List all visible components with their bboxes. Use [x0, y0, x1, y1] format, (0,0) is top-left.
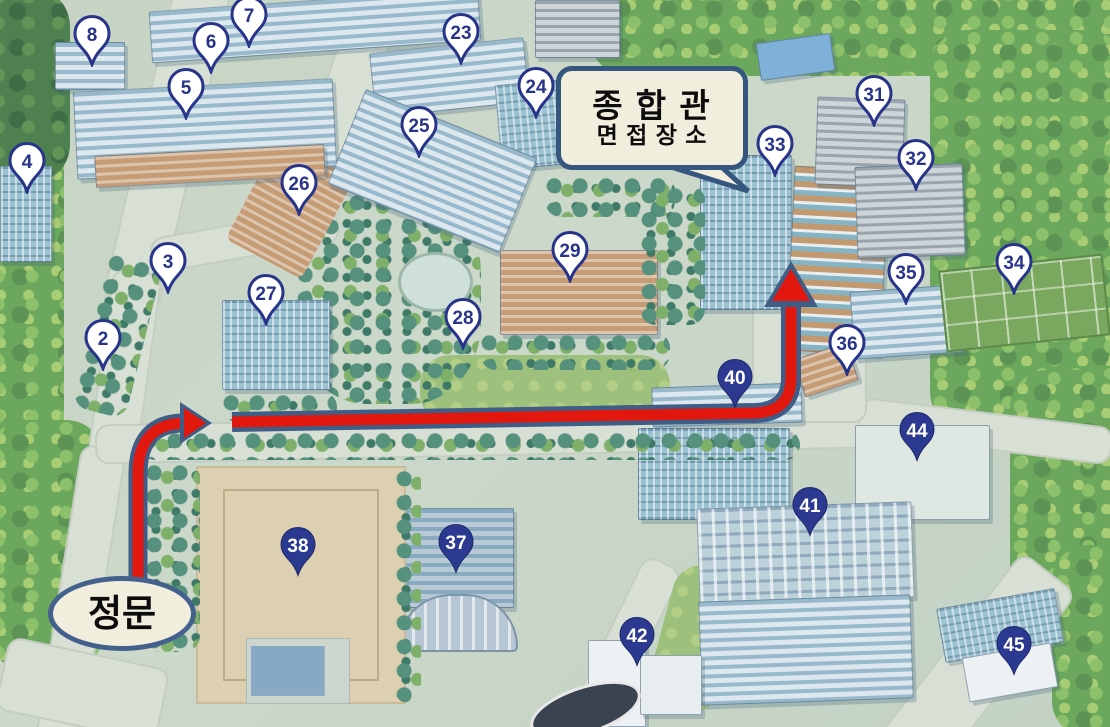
callout-subtitle: 면 접 장 소: [597, 124, 708, 147]
interview-location-callout: 종 합 관 면 접 장 소: [556, 66, 748, 170]
main-gate-label: 정문: [48, 576, 196, 651]
callout-building-name: 종 합 관: [592, 89, 711, 122]
campus-map: 2345678232425262728293132333435363738404…: [0, 0, 1110, 727]
main-gate-text: 정문: [88, 595, 156, 632]
